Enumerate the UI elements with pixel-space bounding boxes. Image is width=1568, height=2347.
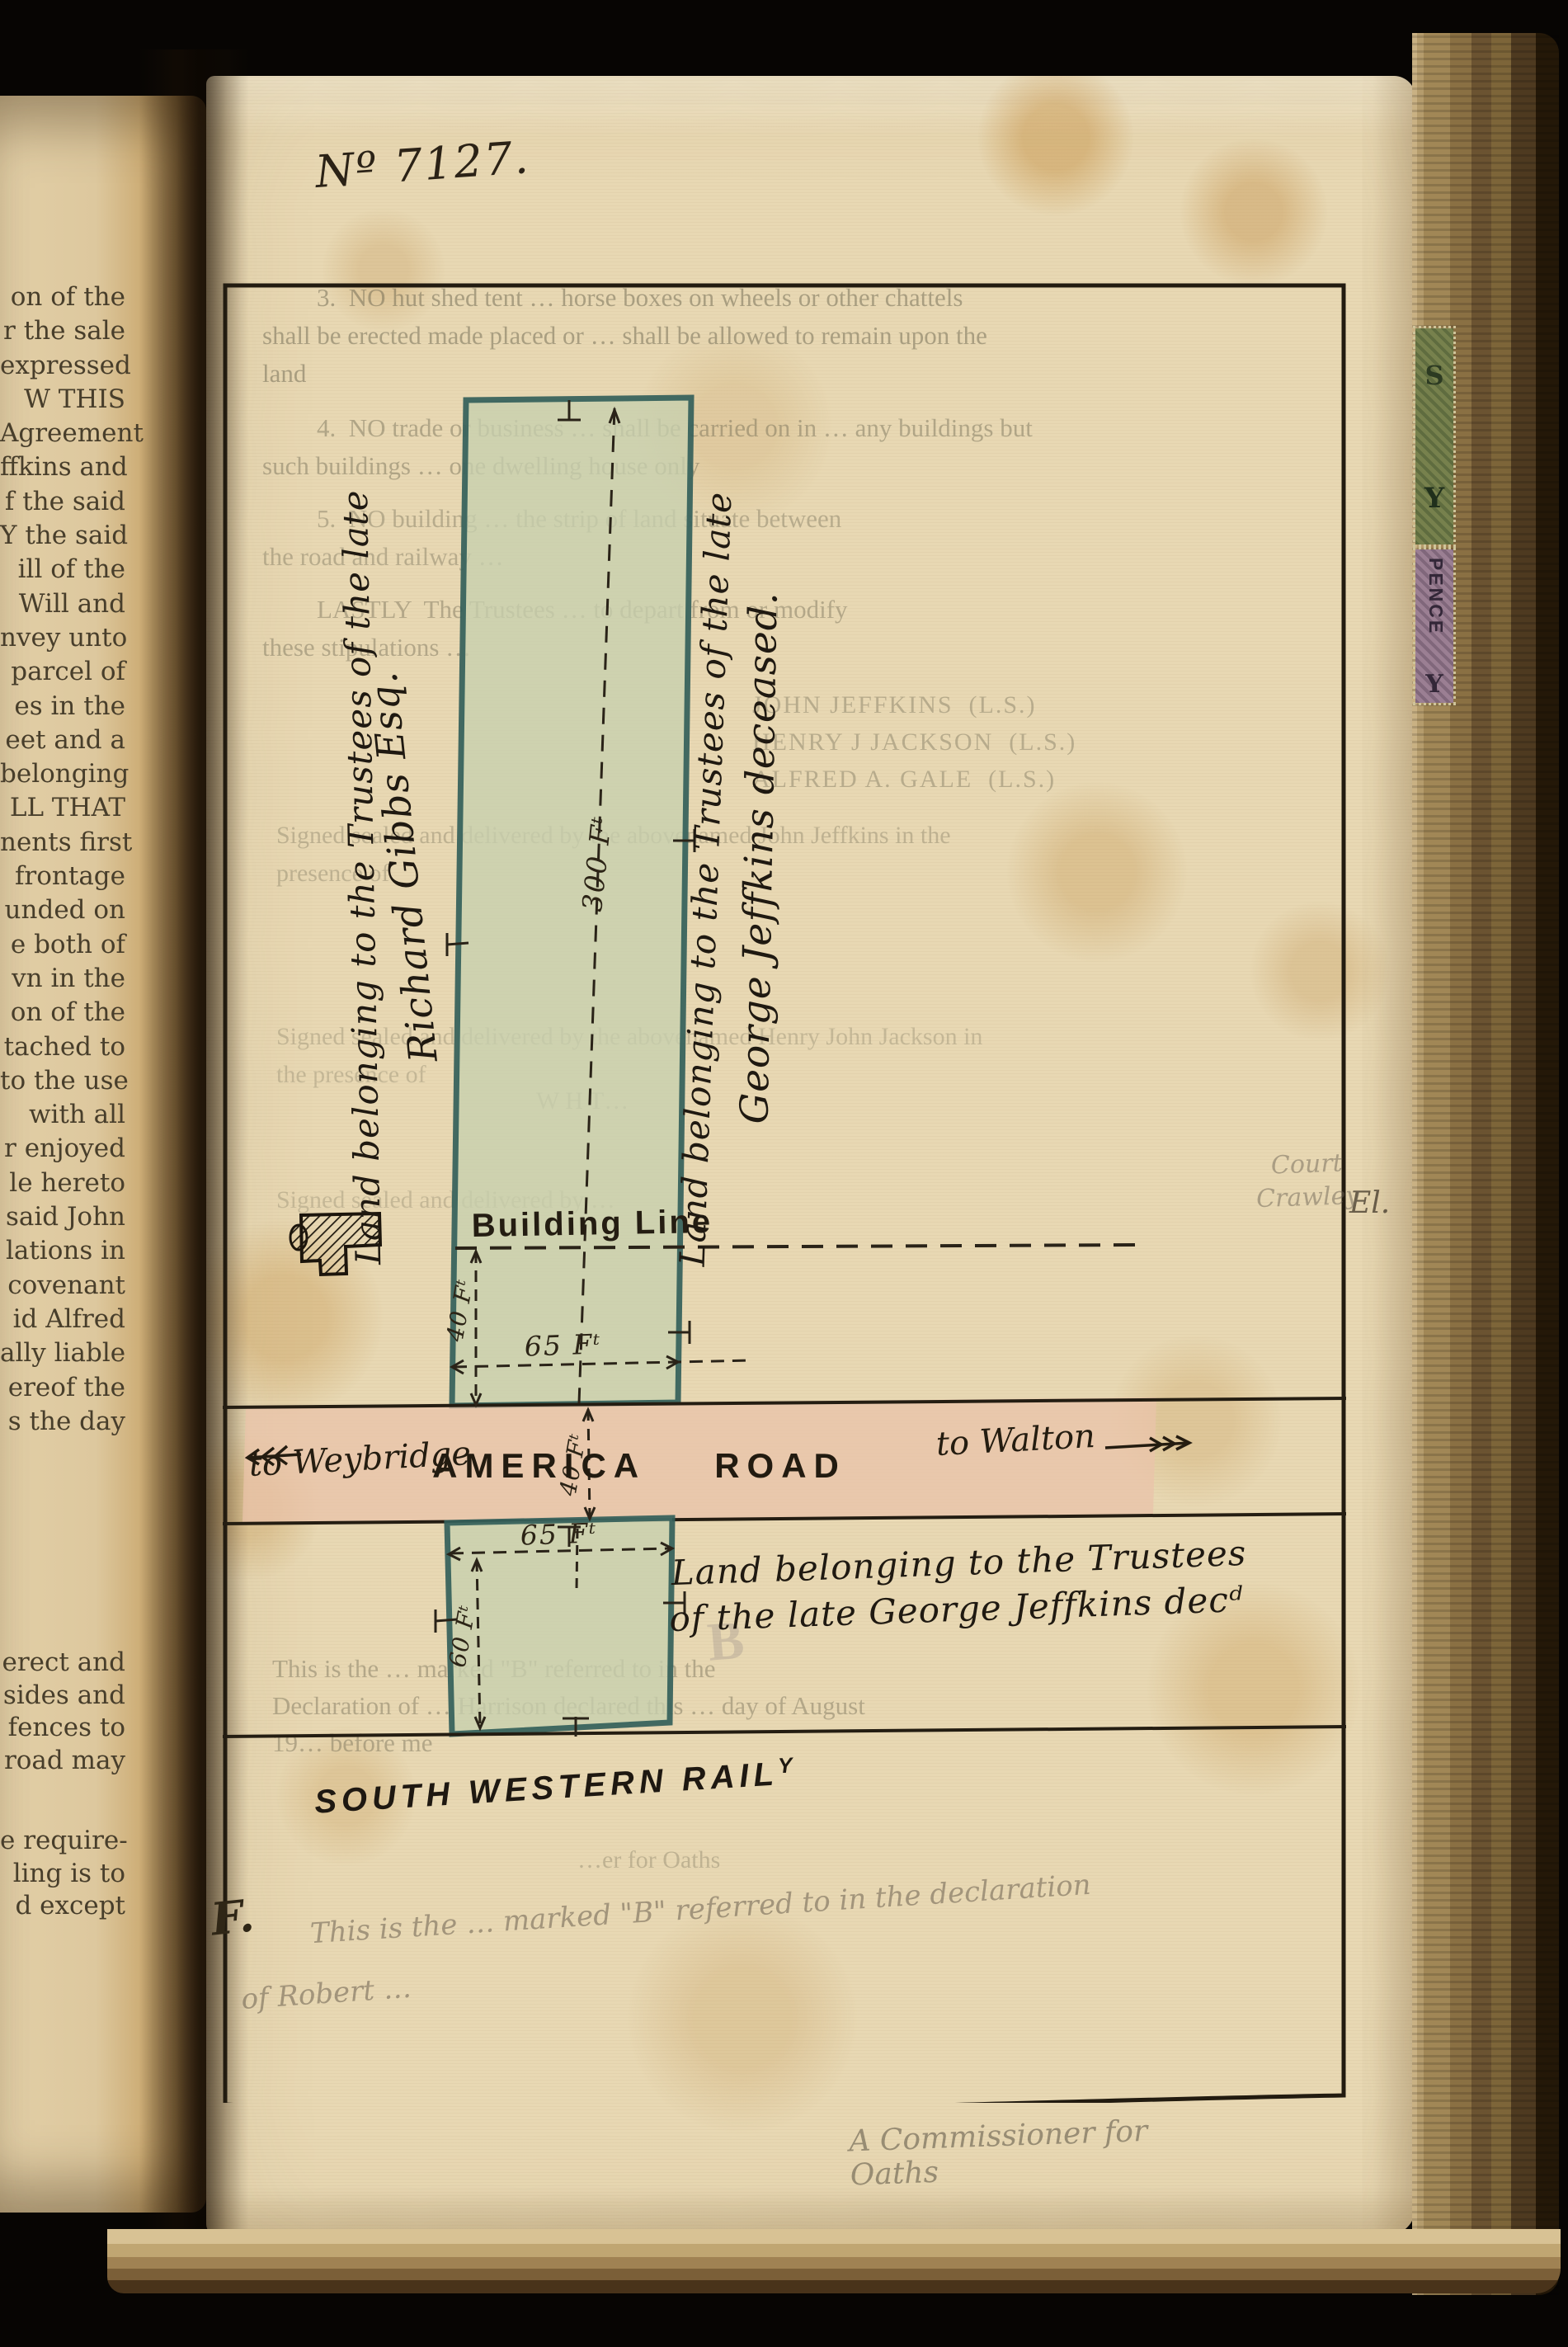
pencil-signature: A Commissioner for Oaths	[849, 2113, 1206, 2193]
book-photograph: on of ther the saleexpressedW THISAgreem…	[0, 0, 1568, 2347]
text-line: ally liable	[0, 1336, 125, 1370]
text-line: e both of	[0, 928, 125, 962]
dim-65ft-lower: 65 Fᵗ	[520, 1516, 598, 1551]
dim-65ft-upper: 65 Fᵗ	[524, 1327, 602, 1362]
text-line: ill of the	[0, 553, 125, 587]
text-line: vn in the	[0, 962, 125, 996]
plan-frame	[225, 285, 1344, 2103]
text-line: d except	[0, 1890, 125, 1923]
text-line: eet and a	[0, 723, 125, 757]
stamp-letter: S	[1415, 360, 1453, 391]
page-edges-bottom	[107, 2229, 1561, 2293]
text-line: lations in	[0, 1234, 125, 1268]
pen-mark: F.	[209, 1888, 257, 1945]
text-line: covenant	[0, 1269, 125, 1303]
text-line: s the day	[0, 1405, 125, 1439]
upper-parcel	[452, 398, 691, 1406]
text-line: id Alfred	[0, 1303, 125, 1336]
text-line: road may	[0, 1745, 125, 1778]
text-line: frontage	[0, 860, 125, 893]
text-line: tached to	[0, 1030, 125, 1064]
stamp-letter: Y	[1415, 670, 1453, 699]
stamp-word: PENCE	[1424, 558, 1447, 635]
green-revenue-stamp: S Y	[1415, 328, 1453, 544]
road-name-label: AMERICA ROAD	[432, 1446, 846, 1485]
text-line: Agreement	[0, 417, 125, 450]
left-page-text-block-1: on of ther the saleexpressedW THISAgreem…	[0, 280, 125, 1439]
text-line: Crawley	[1212, 1178, 1403, 1218]
railway-label: SOUTH WESTERN RAILY	[313, 1752, 796, 1821]
text-line: nents first	[0, 826, 125, 860]
text-line: es in the	[0, 690, 125, 723]
text-line: ereof the	[0, 1371, 125, 1405]
text-line: fences to	[0, 1712, 125, 1745]
stamp-letter: Y	[1415, 482, 1453, 515]
text-line: r enjoyed	[0, 1132, 125, 1166]
left-page-text-block-3: e require-ling is tod except	[0, 1825, 125, 1923]
text-line: parcel of	[0, 655, 125, 689]
text-line: ling is to	[0, 1858, 125, 1891]
text-line: r the sale	[0, 314, 125, 348]
text-line: W THIS	[0, 383, 125, 417]
railway-label-main: SOUTH WESTERN RAIL	[313, 1756, 779, 1820]
left-page-text-block-2: erect andsides andfences toroad may	[0, 1647, 125, 1777]
text-line: erect and	[0, 1647, 125, 1680]
text-line: ffkins and	[0, 450, 125, 484]
text-line: unded on	[0, 893, 125, 927]
text-line: said John	[0, 1200, 125, 1234]
text-line: f the said	[0, 485, 125, 519]
right-parcel-label-line2: George Jeffkins deceased.	[732, 591, 786, 1124]
purple-revenue-stamp: PENCE Y	[1415, 549, 1453, 703]
text-line: le hereto	[0, 1166, 125, 1200]
text-line: sides and	[0, 1680, 125, 1713]
text-line: to the use	[0, 1064, 125, 1098]
pencil-court-note: CourtCrawley	[1212, 1145, 1404, 1218]
text-line: with all	[0, 1098, 125, 1132]
text-line: expressed	[0, 349, 125, 383]
text-line: LL THAT	[0, 791, 125, 825]
text-line: on of the	[0, 280, 125, 314]
land-plan-drawing: Building Line 300 Fᵗ 40 Fᵗ 65 Fᵗ 40 Fᵗ 6…	[223, 283, 1346, 2103]
text-line: nvey unto	[0, 621, 125, 655]
text-line: Will and	[0, 587, 125, 621]
text-line: Y the said	[0, 519, 125, 553]
railway-line	[223, 1727, 1346, 1737]
text-line: on of the	[0, 996, 125, 1030]
text-line: e require-	[0, 1825, 125, 1858]
railway-label-superscript: Y	[777, 1752, 795, 1778]
left-parcel-label-line1: Land belonging to the Trustees of the la…	[335, 489, 388, 1265]
text-line: belonging	[0, 757, 125, 791]
